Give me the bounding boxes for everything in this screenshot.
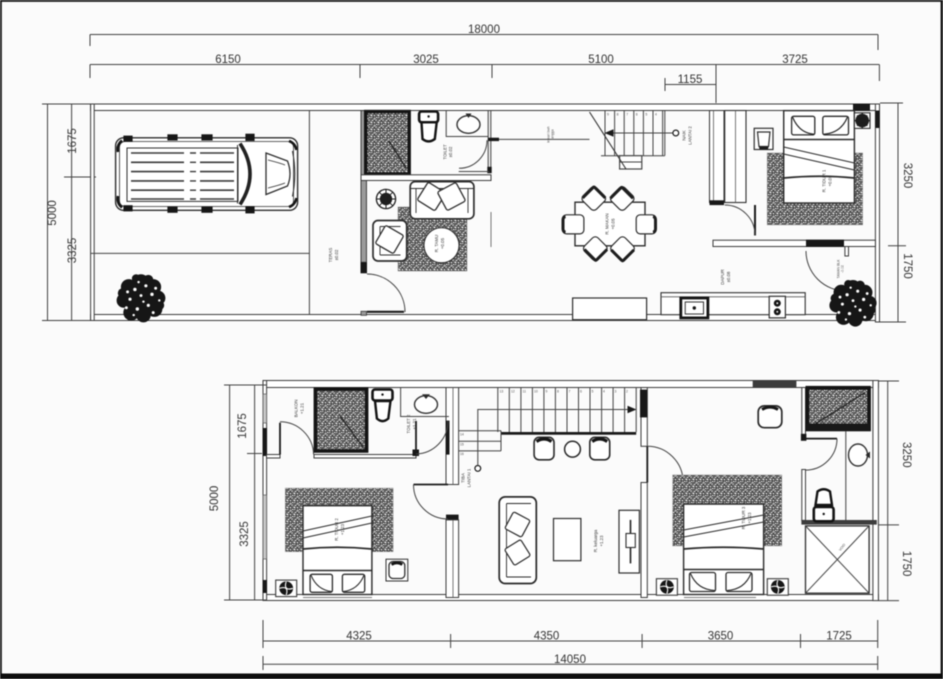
svg-text:3325: 3325 <box>239 521 251 547</box>
svg-text:+1.23: +1.23 <box>747 512 752 524</box>
svg-text:6: 6 <box>580 390 582 394</box>
svg-text:+1.23: +1.23 <box>599 535 604 547</box>
svg-text:8: 8 <box>557 390 559 394</box>
svg-text:1675: 1675 <box>67 128 79 154</box>
svg-text:+0.05: +0.05 <box>440 237 445 249</box>
svg-text:11: 11 <box>523 390 527 394</box>
svg-text:6150: 6150 <box>215 54 241 66</box>
svg-text:1155: 1155 <box>678 74 703 86</box>
svg-text:R. MAKAN: R. MAKAN <box>605 213 610 234</box>
svg-text:TOILET: TOILET <box>443 144 448 160</box>
svg-text:3250: 3250 <box>901 163 913 189</box>
svg-text:±0.02: ±0.02 <box>448 146 453 158</box>
svg-text:14050: 14050 <box>554 654 586 666</box>
svg-text:3: 3 <box>615 390 617 394</box>
svg-text:5000: 5000 <box>209 486 221 512</box>
svg-text:LANTAI 1: LANTAI 1 <box>467 468 472 487</box>
svg-text:tangga: tangga <box>551 129 555 139</box>
svg-text:3025: 3025 <box>413 54 439 66</box>
svg-text:6: 6 <box>636 113 638 117</box>
svg-text:5: 5 <box>645 113 647 117</box>
svg-text:3725: 3725 <box>782 54 808 66</box>
svg-text:+0.05: +0.05 <box>611 218 616 230</box>
svg-text:3250: 3250 <box>900 442 912 468</box>
svg-text:4350: 4350 <box>534 631 560 643</box>
svg-text:7: 7 <box>626 113 628 117</box>
svg-text:1725: 1725 <box>826 631 852 643</box>
svg-text:4: 4 <box>603 390 605 394</box>
svg-text:1750: 1750 <box>900 551 912 577</box>
svg-text:+0.05: +0.05 <box>828 175 833 187</box>
svg-text:1675: 1675 <box>237 413 249 439</box>
svg-text:R. TIDUR 3: R. TIDUR 3 <box>741 506 746 529</box>
svg-text:5000: 5000 <box>47 200 59 226</box>
svg-text:13: 13 <box>500 390 504 394</box>
svg-text:4325: 4325 <box>346 631 372 643</box>
svg-text:1750: 1750 <box>901 253 913 279</box>
svg-text:LANTAI 2: LANTAI 2 <box>688 126 693 145</box>
svg-text:18000: 18000 <box>468 24 500 36</box>
svg-text:2: 2 <box>626 390 628 394</box>
svg-text:3325: 3325 <box>67 238 79 264</box>
svg-text:TERAS: TERAS <box>328 248 333 263</box>
svg-text:R. TIDUR 1: R. TIDUR 1 <box>822 169 827 192</box>
svg-text:-0.02: -0.02 <box>841 265 845 273</box>
svg-text:BALKON: BALKON <box>294 400 299 418</box>
svg-text:8: 8 <box>617 113 619 117</box>
svg-text:10: 10 <box>534 390 538 394</box>
svg-text:±0.08: ±0.08 <box>726 271 731 283</box>
svg-text:R. keluarga: R. keluarga <box>593 529 598 552</box>
svg-text:15: 15 <box>460 443 464 447</box>
svg-text:4: 4 <box>655 113 657 117</box>
svg-text:DAPUR: DAPUR <box>720 269 725 284</box>
svg-text:16: 16 <box>460 452 464 456</box>
svg-text:NAIK: NAIK <box>682 130 687 140</box>
svg-text:5: 5 <box>592 390 594 394</box>
svg-text:3650: 3650 <box>708 631 734 643</box>
svg-text:TIBA: TIBA <box>461 473 466 483</box>
svg-text:+1.21: +1.21 <box>300 402 305 414</box>
svg-text:5100: 5100 <box>588 54 614 66</box>
svg-text:±0.02: ±0.02 <box>334 249 339 261</box>
svg-text:9: 9 <box>546 390 548 394</box>
svg-text:12: 12 <box>511 390 515 394</box>
svg-text:+1.23: +1.23 <box>340 523 345 535</box>
svg-text:R. TIDUR 2: R. TIDUR 2 <box>334 518 339 541</box>
svg-text:9: 9 <box>607 113 609 117</box>
svg-text:7: 7 <box>569 390 571 394</box>
svg-text:14: 14 <box>460 433 464 437</box>
svg-text:R. TAMU: R. TAMU <box>434 235 439 253</box>
